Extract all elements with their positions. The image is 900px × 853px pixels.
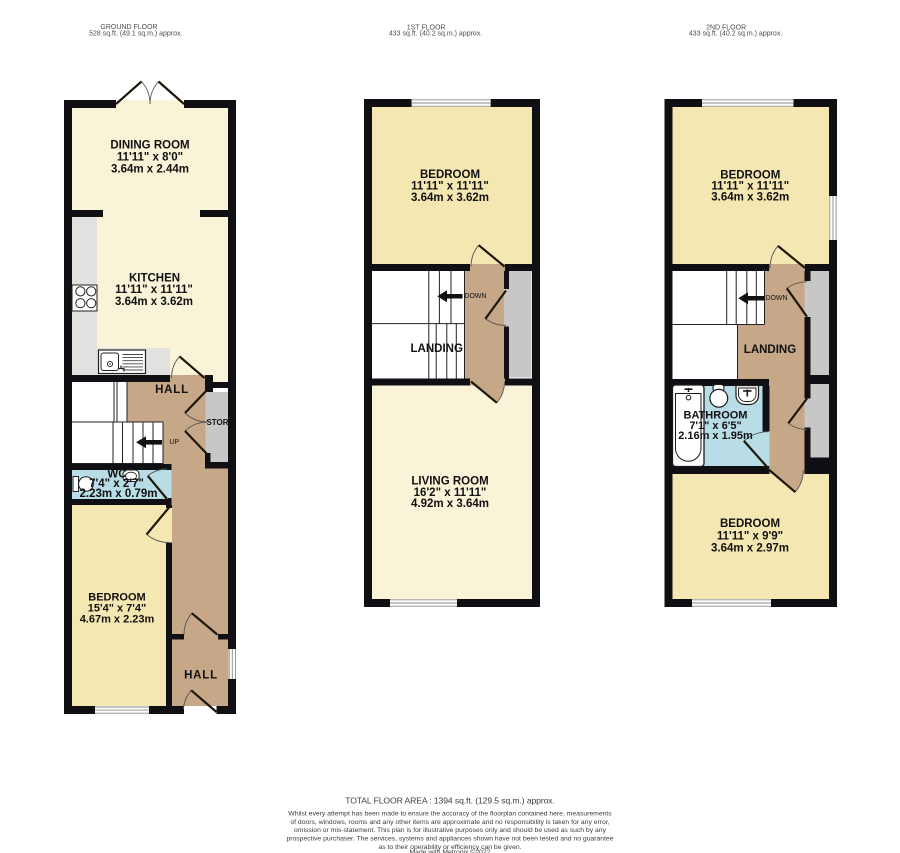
svg-text:16'2" x 11'11": 16'2" x 11'11" <box>414 487 487 499</box>
svg-text:TOTAL FLOOR AREA : 1394 sq.ft.: TOTAL FLOOR AREA : 1394 sq.ft. (129.5 sq… <box>345 795 555 805</box>
svg-text:BEDROOM: BEDROOM <box>420 169 480 181</box>
svg-text:LIVING ROOM: LIVING ROOM <box>411 476 488 488</box>
svg-text:3.64m x 3.62m: 3.64m x 3.62m <box>115 296 193 308</box>
svg-text:prospective purchaser. The ser: prospective purchaser. The services, sys… <box>286 836 613 843</box>
svg-text:3.64m x 2.97m: 3.64m x 2.97m <box>711 543 789 555</box>
svg-text:Made with Metropix ©2022: Made with Metropix ©2022 <box>410 848 491 853</box>
svg-text:11'11" x 11'11": 11'11" x 11'11" <box>411 181 489 193</box>
svg-text:433 sq.ft. (40.2 sq.m.) approx: 433 sq.ft. (40.2 sq.m.) approx. <box>389 31 482 38</box>
svg-text:Whilst every attempt has been: Whilst every attempt has been made to en… <box>288 810 612 817</box>
svg-text:11'11" x 9'9": 11'11" x 9'9" <box>717 530 783 542</box>
svg-text:15'4" x 7'4": 15'4" x 7'4" <box>88 602 146 614</box>
svg-text:3.64m x 3.62m: 3.64m x 3.62m <box>411 192 489 204</box>
svg-text:11'11" x 11'11": 11'11" x 11'11" <box>115 284 193 296</box>
svg-text:of doors, windows, rooms and a: of doors, windows, rooms and any other i… <box>290 819 609 826</box>
svg-text:3.64m x 3.62m: 3.64m x 3.62m <box>711 192 789 204</box>
svg-text:4.92m x 3.64m: 4.92m x 3.64m <box>411 498 489 510</box>
svg-text:HALL: HALL <box>155 384 189 396</box>
svg-text:KITCHEN: KITCHEN <box>129 273 180 285</box>
svg-text:BEDROOM: BEDROOM <box>720 518 780 530</box>
svg-text:2.23m x 0.79m: 2.23m x 0.79m <box>79 488 157 500</box>
svg-text:DOWN: DOWN <box>765 295 787 302</box>
svg-text:11'11" x 8'0": 11'11" x 8'0" <box>117 152 183 164</box>
svg-text:STOR: STOR <box>206 418 228 427</box>
svg-text:DOWN: DOWN <box>464 293 486 300</box>
svg-text:LANDING: LANDING <box>411 343 463 355</box>
svg-text:3.64m x 2.44m: 3.64m x 2.44m <box>111 164 189 176</box>
svg-text:omission or mis-statement. Thi: omission or mis-statement. This plan is … <box>294 827 607 834</box>
svg-text:DINING ROOM: DINING ROOM <box>110 140 189 152</box>
svg-text:LANDING: LANDING <box>744 344 796 356</box>
svg-text:528 sq.ft. (49.1 sq.m.) approx: 528 sq.ft. (49.1 sq.m.) approx. <box>89 31 182 38</box>
svg-text:4.67m x 2.23m: 4.67m x 2.23m <box>80 614 155 626</box>
svg-text:HALL: HALL <box>184 670 218 682</box>
svg-text:UP: UP <box>169 439 179 446</box>
svg-text:2.16m x 1.95m: 2.16m x 1.95m <box>678 430 753 442</box>
svg-text:433 sq.ft. (40.2 sq.m.) approx: 433 sq.ft. (40.2 sq.m.) approx. <box>689 31 782 38</box>
